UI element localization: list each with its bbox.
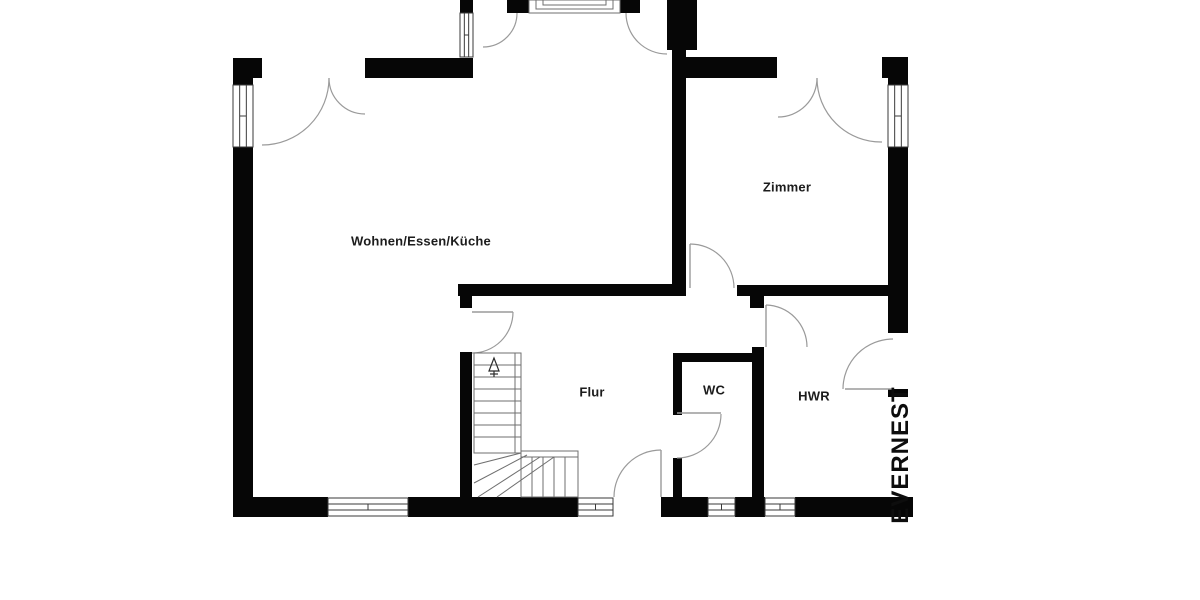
- wall-segment: [460, 0, 473, 13]
- wall-segment: [673, 458, 682, 497]
- wall-segment: [620, 0, 640, 13]
- door-swing-arc: [677, 414, 721, 458]
- door-swing-arc: [614, 450, 661, 497]
- wall-segment: [233, 78, 253, 85]
- door-swing-arc: [817, 78, 882, 142]
- stair-tread-line: [497, 457, 554, 497]
- entrance-steps: [543, 0, 606, 5]
- wall-segment: [888, 78, 908, 85]
- room-label-flur: Flur: [579, 385, 604, 400]
- door-swing-arc: [778, 78, 817, 117]
- wall-segment: [737, 285, 888, 296]
- wall-segment: [673, 353, 682, 415]
- room-label-hwr: HWR: [798, 389, 830, 404]
- wall-segment: [233, 497, 328, 517]
- door-swing-arc: [626, 13, 667, 54]
- door-swing-arc: [690, 244, 734, 288]
- wall-segment: [365, 58, 473, 78]
- wall-segment: [888, 147, 908, 333]
- stair-tread-line: [474, 453, 521, 465]
- wall-segment: [672, 50, 686, 296]
- wall-segment: [667, 0, 697, 50]
- door-swing-arc: [843, 339, 893, 389]
- door-swing-arc: [766, 305, 807, 347]
- door-swing-arc: [262, 78, 329, 145]
- wall-segment: [735, 497, 765, 517]
- wall-segment: [233, 147, 253, 517]
- wall-segment: [752, 347, 764, 497]
- wall-segment: [233, 58, 262, 78]
- wall-segment: [795, 497, 888, 517]
- door-swing-arc: [472, 312, 513, 353]
- evernest-watermark: EVERNEST: [887, 386, 915, 523]
- wall-segment: [673, 353, 755, 362]
- wall-segment: [507, 0, 529, 13]
- wall-segment: [750, 296, 764, 308]
- stair-tread-line: [474, 455, 527, 483]
- wall-segment: [661, 497, 708, 517]
- wall-segment: [408, 497, 578, 517]
- door-swing-arc: [483, 13, 517, 47]
- room-label-wc: WC: [703, 383, 725, 398]
- wall-segment: [460, 352, 472, 497]
- door-swing-arc: [329, 78, 365, 114]
- wall-segment: [458, 284, 673, 296]
- stair-tread-line: [478, 457, 540, 497]
- wall-segment: [882, 57, 908, 78]
- floor-plan-page: Wohnen/Essen/Küche Zimmer Flur WC HWR EV…: [0, 0, 1200, 600]
- floor-plan-drawing: [0, 0, 1200, 600]
- wall-segment: [680, 57, 777, 78]
- room-label-wohnen: Wohnen/Essen/Küche: [351, 234, 491, 249]
- wall-segment: [460, 284, 472, 308]
- room-label-zimmer: Zimmer: [763, 180, 811, 195]
